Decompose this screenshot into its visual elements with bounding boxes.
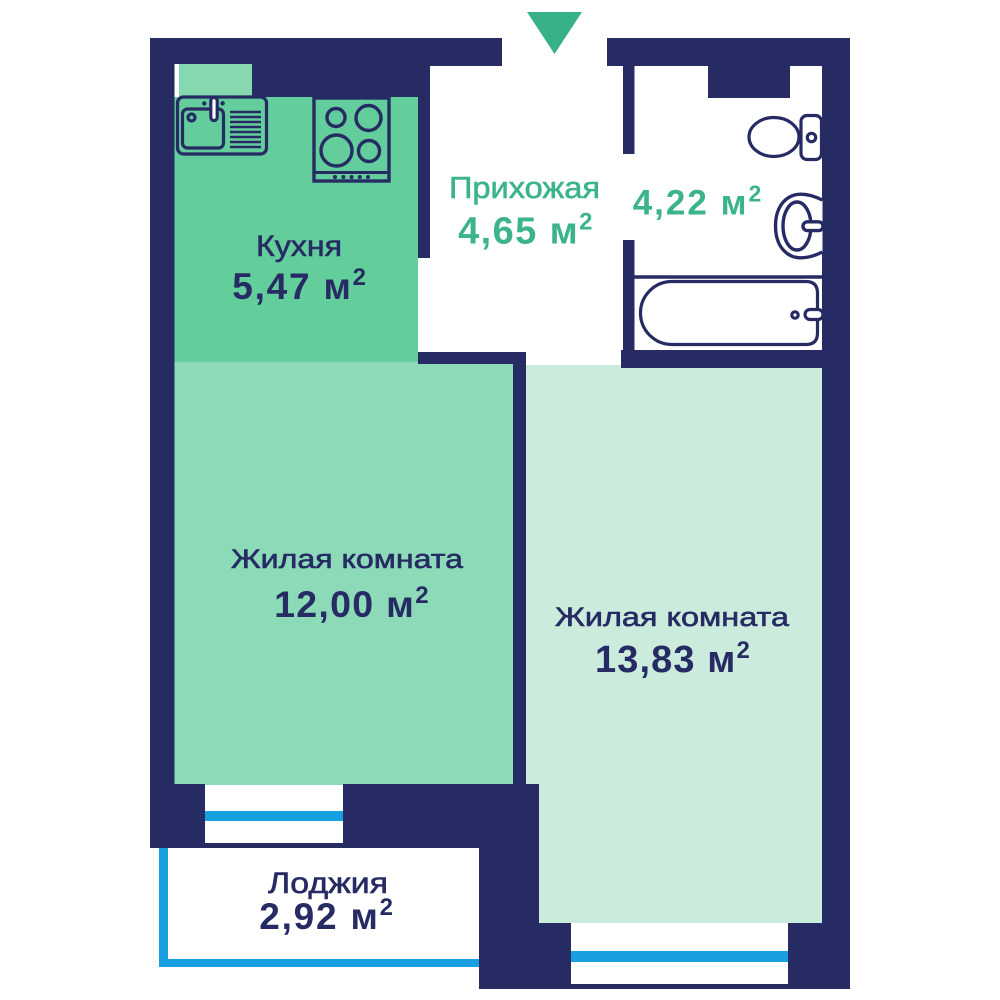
svg-text:2,92 м2: 2,92 м2 xyxy=(259,894,395,937)
svg-text:Прихожая: Прихожая xyxy=(449,170,600,205)
svg-text:13,83 м2: 13,83 м2 xyxy=(595,637,751,681)
svg-text:Кухня: Кухня xyxy=(256,230,342,263)
svg-text:4,22 м2: 4,22 м2 xyxy=(633,181,764,223)
svg-text:5,47 м2: 5,47 м2 xyxy=(232,264,368,307)
svg-text:12,00 м2: 12,00 м2 xyxy=(274,582,430,625)
svg-text:Жилая комната: Жилая комната xyxy=(231,544,464,574)
svg-text:4,65 м2: 4,65 м2 xyxy=(458,209,594,253)
svg-text:Жилая комната: Жилая комната xyxy=(555,602,790,632)
